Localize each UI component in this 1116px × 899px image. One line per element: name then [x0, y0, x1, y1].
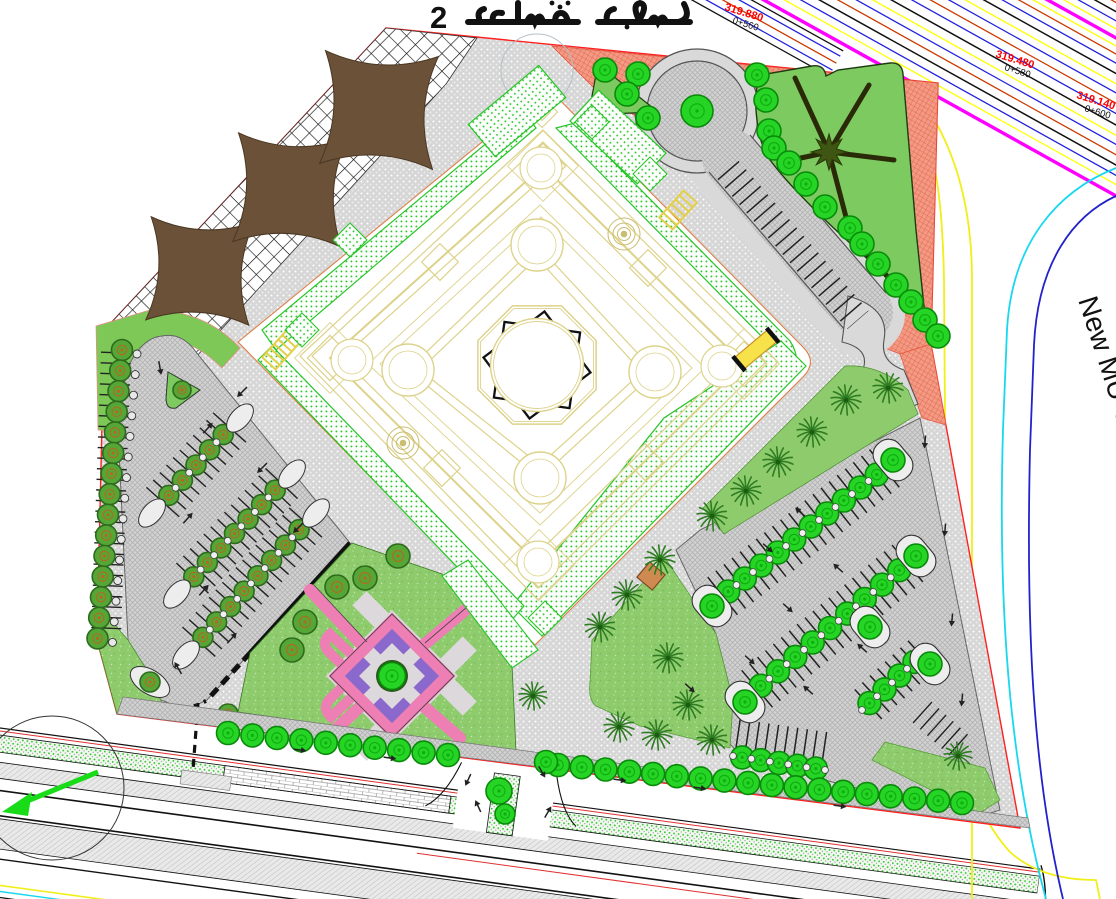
svg-text:2: 2	[430, 0, 447, 35]
